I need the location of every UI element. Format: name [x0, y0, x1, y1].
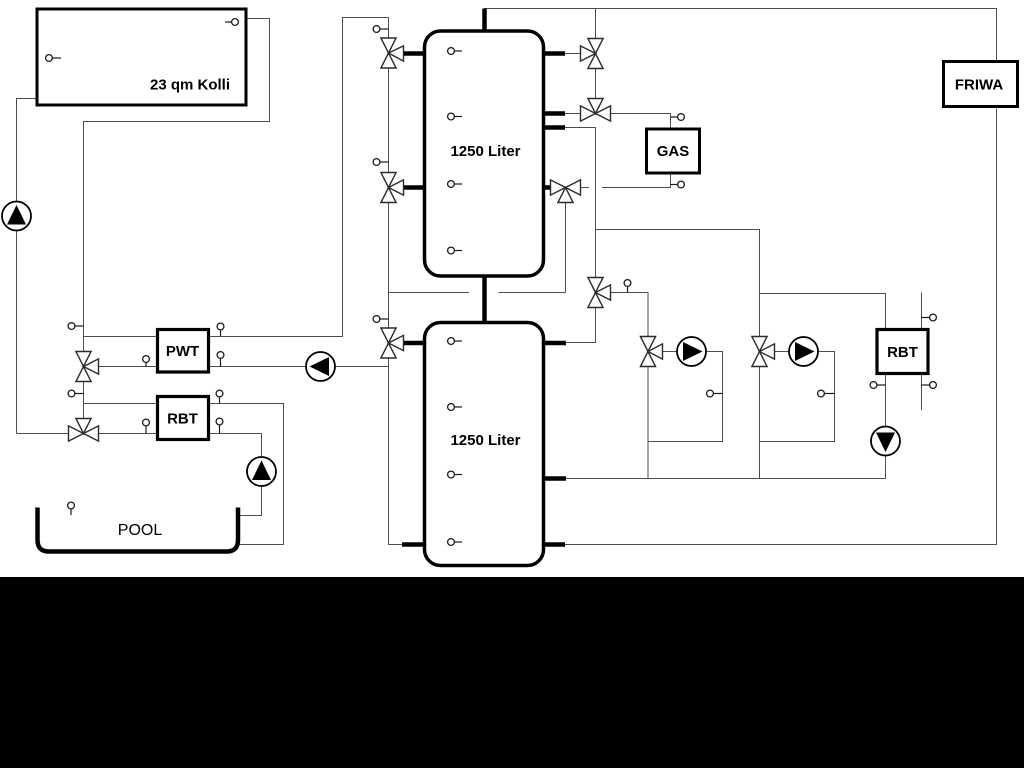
svg-text:RBT: RBT — [887, 344, 918, 361]
svg-text:RBT: RBT — [167, 411, 198, 428]
svg-text:1250 Liter: 1250 Liter — [450, 143, 520, 160]
svg-text:PWT: PWT — [166, 343, 199, 360]
svg-text:FRIWA: FRIWA — [955, 77, 1003, 94]
svg-text:GAS: GAS — [657, 143, 690, 160]
svg-text:1250 Liter: 1250 Liter — [450, 432, 520, 449]
svg-text:POOL: POOL — [118, 522, 163, 539]
svg-text:23 qm Kolli: 23 qm Kolli — [150, 77, 230, 94]
